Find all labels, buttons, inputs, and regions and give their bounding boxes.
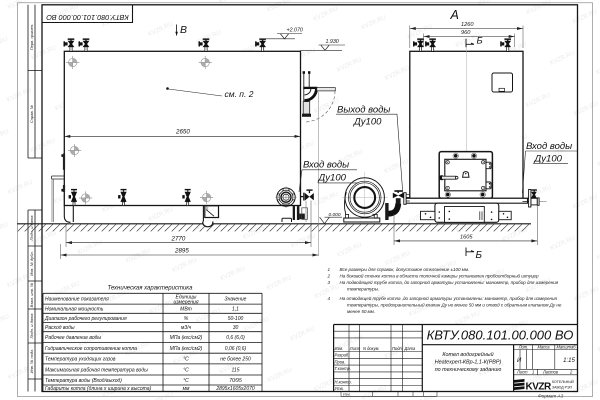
svg-text:1,1: 1,1 (232, 307, 239, 313)
svg-text:На боковой стенке котла в обла: На боковой стенке котла в области топочн… (340, 273, 540, 279)
svg-text:Б: Б (477, 36, 483, 47)
svg-text:Т.контр.: Т.контр. (335, 366, 352, 371)
svg-text:N докум.: N докум. (363, 346, 380, 351)
svg-text:2650: 2650 (175, 129, 190, 136)
svg-text:°С: °С (183, 357, 189, 363)
svg-text:0.000: 0.000 (329, 212, 341, 218)
svg-text:%: % (184, 316, 189, 322)
svg-text:МПа (кгс/см2): МПа (кгс/см2) (170, 346, 203, 352)
svg-text:115: 115 (232, 367, 240, 373)
svg-text:Ду100: Ду100 (534, 154, 563, 165)
svg-text:+2.070: +2.070 (287, 28, 303, 34)
svg-text:Лист: Лист (349, 346, 361, 351)
svg-text:А: А (450, 8, 459, 22)
svg-text:Перв. примен.: Перв. примен. (29, 24, 34, 51)
svg-text:1: 1 (532, 370, 534, 375)
svg-text:70/95: 70/95 (229, 378, 242, 384)
svg-text:КВТУ.080.101.00.000 ВО: КВТУ.080.101.00.000 ВО (46, 13, 129, 22)
svg-text:Дата: Дата (404, 346, 417, 351)
svg-text:Вход воды: Вход воды (526, 141, 572, 152)
svg-text:2: 2 (327, 274, 331, 279)
svg-text:Взам. инв. №: Взам. инв. № (29, 282, 34, 307)
svg-text:Формат А3: Формат А3 (538, 393, 564, 398)
svg-text:1:15: 1:15 (563, 358, 575, 364)
svg-text:1260: 1260 (461, 22, 474, 28)
svg-text:менее 50 мм.: менее 50 мм. (347, 309, 375, 314)
svg-text:Выход воды: Выход воды (337, 105, 390, 116)
svg-text:Температура воды (Вход/выход): Температура воды (Вход/выход) (45, 378, 122, 384)
svg-text:см. п. 2: см. п. 2 (225, 89, 254, 99)
svg-text:Подп. и дата: Подп. и дата (29, 215, 34, 241)
svg-text:Heatexpert-КВр-1,1-К(РВР): Heatexpert-КВр-1,1-К(РВР) (435, 360, 502, 366)
svg-text:МПа (кгс/см2): МПа (кгс/см2) (170, 335, 203, 341)
svg-text:Значение: Значение (225, 297, 247, 303)
svg-text:температуры, предохранительный: температуры, предохранительный клапан Ду… (347, 302, 562, 308)
svg-text:Листов: Листов (542, 370, 559, 375)
svg-text:Изм.: Изм. (335, 346, 344, 351)
svg-text:Габариты котла (длина х ширина: Габариты котла (длина х ширина х высота) (45, 386, 152, 392)
svg-text:мм: мм (183, 386, 190, 392)
svg-text:Разраб.: Разраб. (335, 353, 350, 358)
svg-text:Лит.: Лит. (518, 344, 529, 349)
svg-text:Лист: Лист (516, 370, 528, 375)
svg-text:0,06 (0,6): 0,06 (0,6) (225, 346, 247, 352)
svg-text:И: И (517, 358, 522, 364)
svg-text:Расход воды: Расход воды (45, 325, 75, 331)
svg-text:KVZR: KVZR (526, 382, 553, 393)
svg-text:температуры.: температуры. (347, 287, 379, 292)
svg-text:Температура уходящих газов: Температура уходящих газов (45, 357, 116, 363)
svg-text:КВТУ.080.101.00.000 ВО: КВТУ.080.101.00.000 ВО (427, 328, 574, 343)
svg-text:Инв. № подл.: Инв. № подл. (29, 349, 34, 374)
svg-text:Изм.: Изм. (343, 393, 351, 397)
svg-text:Котел водогрейный: Котел водогрейный (442, 351, 493, 358)
svg-text:Подп. и дата: Подп. и дата (29, 313, 34, 339)
svg-text:Инв. № дубл.: Инв. № дубл. (29, 251, 34, 276)
svg-text:Рабочее давление воды: Рабочее давление воды (45, 335, 101, 341)
svg-text:0,6 (6,0): 0,6 (6,0) (226, 335, 245, 341)
svg-text:Масса: Масса (537, 344, 550, 349)
svg-text:Максимальная рабочая температу: Максимальная рабочая температура воды (45, 367, 148, 373)
svg-text:по техническому заданию: по техническому заданию (435, 367, 502, 373)
svg-text:Техническая характеристика: Техническая характеристика (108, 286, 194, 292)
svg-text:960: 960 (461, 30, 471, 36)
svg-text:50-100: 50-100 (228, 316, 244, 322)
svg-text:Б: Б (476, 250, 483, 261)
svg-text:Все размеры для справок, допус: Все размеры для справок, допустимое откл… (340, 267, 470, 272)
svg-text:Масштаб: Масштаб (556, 344, 576, 349)
svg-text:Утв.: Утв. (335, 386, 344, 391)
svg-text:Вход воды: Вход воды (303, 160, 349, 171)
svg-text:30: 30 (233, 325, 239, 331)
svg-text:Справ. №: Справ. № (29, 104, 34, 123)
svg-text:Ду100: Ду100 (353, 117, 382, 128)
svg-text:м3/ч: м3/ч (181, 325, 192, 331)
svg-text:Наименование показателя: Наименование показателя (45, 297, 109, 303)
svg-text:Пров.: Пров. (335, 359, 346, 364)
svg-text:В: В (180, 24, 187, 36)
svg-text:°С: °С (183, 367, 189, 373)
svg-text:Ду100: Ду100 (318, 173, 347, 184)
svg-text:Номинальная мощность: Номинальная мощность (45, 307, 104, 313)
svg-text:°С: °С (183, 378, 189, 384)
svg-text:Гидравлическое сопротивление к: Гидравлическое сопротивление котла (45, 346, 137, 352)
svg-text:На подводящей трубе котла, д: На подводящей трубе котла, до запорной а… (340, 279, 559, 285)
svg-text:Н.контр.: Н.контр. (335, 380, 352, 385)
svg-text:МВт: МВт (180, 307, 192, 313)
svg-text:2895: 2895 (174, 248, 189, 255)
svg-text:Диапазон рабочего регулировани: Диапазон рабочего регулирования (44, 316, 127, 322)
svg-text:На отводящей трубе котла ,до: На отводящей трубе котла ,до запорной ар… (340, 295, 558, 301)
svg-text:1.930: 1.930 (326, 39, 339, 45)
svg-text:КОТЕЛЬНЫЙ: КОТЕЛЬНЫЙ (552, 380, 574, 384)
svg-text:ЗАВОД РЭП: ЗАВОД РЭП (552, 386, 573, 390)
svg-text:Подп.: Подп. (392, 346, 403, 351)
svg-text:1605: 1605 (460, 235, 473, 241)
svg-text:измерения: измерения (173, 299, 198, 305)
svg-text:2770: 2770 (171, 235, 186, 242)
svg-text:не более 250: не более 250 (220, 357, 251, 363)
svg-text:2895х1605х2070: 2895х1605х2070 (215, 386, 255, 392)
